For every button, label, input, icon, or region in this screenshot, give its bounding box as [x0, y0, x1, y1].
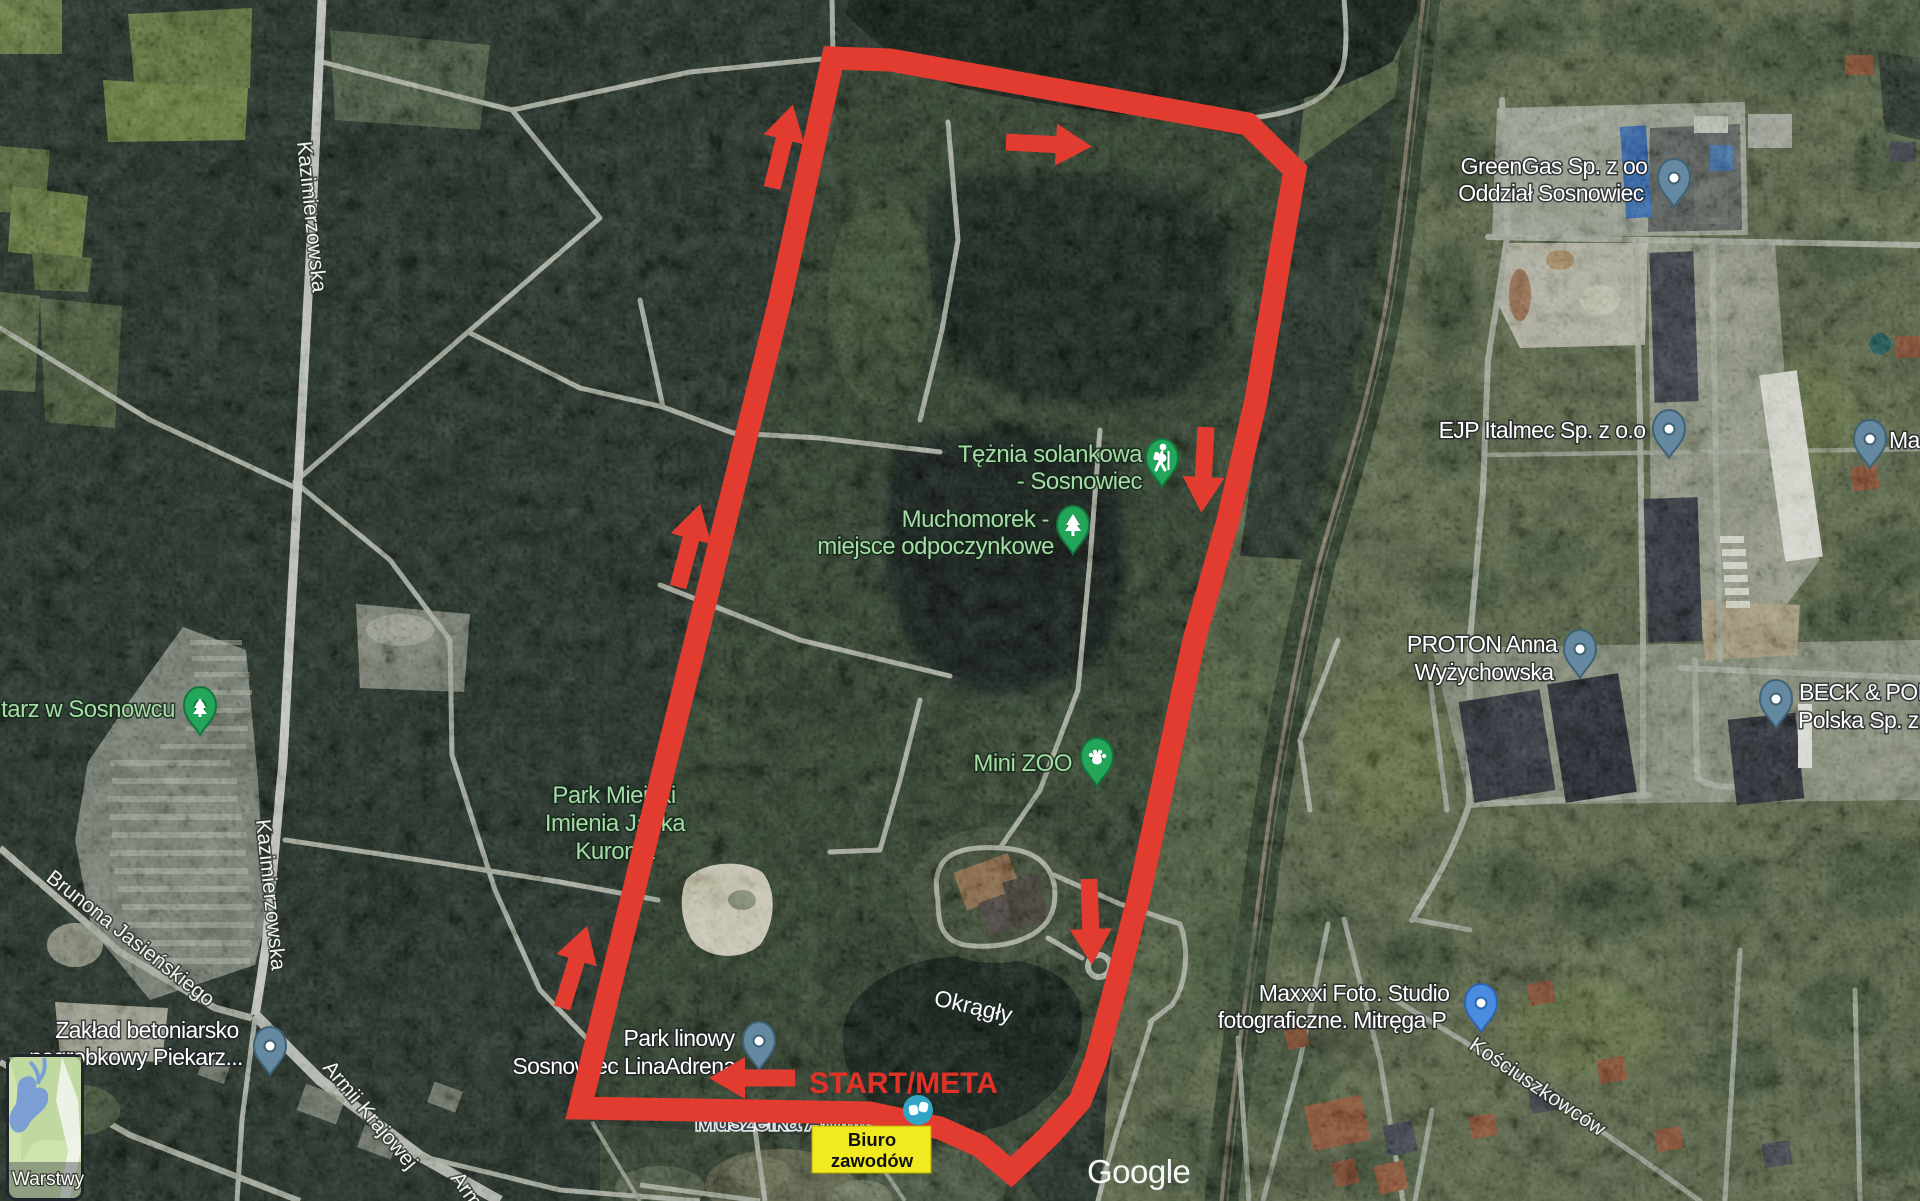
svg-text:Warstwy: Warstwy [12, 1169, 85, 1190]
svg-text:EJP Italmec Sp. z o.o: EJP Italmec Sp. z o.o [1439, 417, 1646, 443]
svg-text:Ma: Ma [1889, 427, 1920, 453]
svg-text:Google: Google [1087, 1153, 1190, 1190]
svg-text:Maxxxi Foto. Studio: Maxxxi Foto. Studio [1259, 980, 1450, 1006]
svg-text:Tężnia solankowa: Tężnia solankowa [958, 441, 1143, 468]
svg-text:Park linowy: Park linowy [624, 1025, 736, 1051]
svg-text:Cmentarz w Sosnowcu: Cmentarz w Sosnowcu [0, 696, 175, 723]
svg-text:Muchomorek -: Muchomorek - [902, 506, 1049, 533]
svg-text:Zakład betoniarsko: Zakład betoniarsko [55, 1017, 239, 1043]
svg-text:Oddział Sosnowiec: Oddział Sosnowiec [1458, 180, 1644, 206]
svg-text:miejsce odpoczynkowe: miejsce odpoczynkowe [817, 533, 1054, 560]
svg-text:Imienia Jacka: Imienia Jacka [545, 810, 686, 837]
svg-text:PROTON Anna: PROTON Anna [1407, 631, 1558, 657]
svg-text:Mini ZOO: Mini ZOO [973, 750, 1072, 777]
svg-text:Polska Sp. z: Polska Sp. z [1798, 707, 1919, 733]
svg-text:Biuro: Biuro [848, 1129, 896, 1150]
svg-text:GreenGas Sp. z oo: GreenGas Sp. z oo [1461, 153, 1648, 179]
svg-text:Wyżychowska: Wyżychowska [1415, 659, 1555, 685]
svg-text:Sosnowiec LinaAdrena: Sosnowiec LinaAdrena [512, 1053, 736, 1079]
svg-text:zawodów: zawodów [831, 1150, 914, 1171]
svg-text:BECK & POL: BECK & POL [1799, 679, 1920, 705]
svg-text:fotograficzne. Mitręga P: fotograficzne. Mitręga P [1218, 1007, 1447, 1033]
svg-text:- Sosnowiec: - Sosnowiec [1017, 468, 1143, 495]
svg-text:START/META: START/META [809, 1067, 998, 1100]
